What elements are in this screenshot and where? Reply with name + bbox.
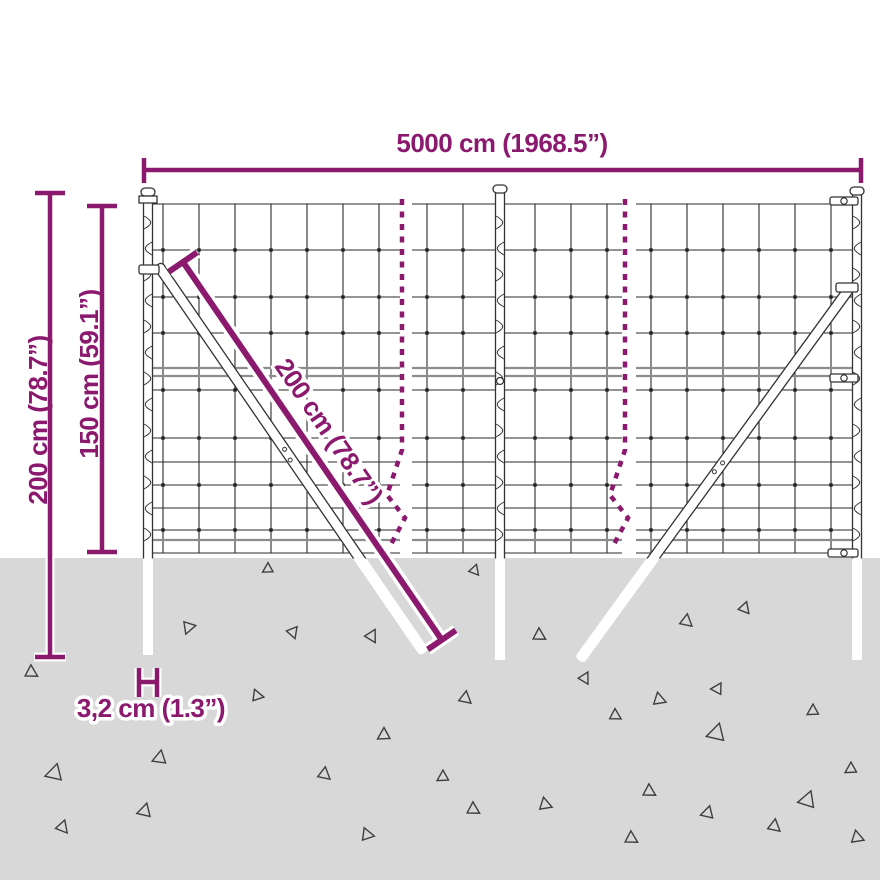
panel-break-left [387,199,405,548]
panel-break-right [610,199,628,548]
dimension-above-ground-height-label: 150 cm (59.1”) [74,289,104,458]
dimension-above-ground-height: 150 cm (59.1”) [74,206,117,552]
dimension-total-height-label: 200 cm (78.7”) [23,335,53,504]
dimension-width: 5000 cm (1968.5”) [144,128,861,183]
dimension-width-label: 5000 cm (1968.5”) [396,128,607,158]
fence-dimension-diagram: 5000 cm (1968.5”) 200 cm (78.7”) 150 cm … [0,0,880,880]
dimension-post-thickness-label: 3,2 cm (1.3”) [77,693,225,723]
fence-diagram-svg: 5000 cm (1968.5”) 200 cm (78.7”) 150 cm … [0,0,880,880]
